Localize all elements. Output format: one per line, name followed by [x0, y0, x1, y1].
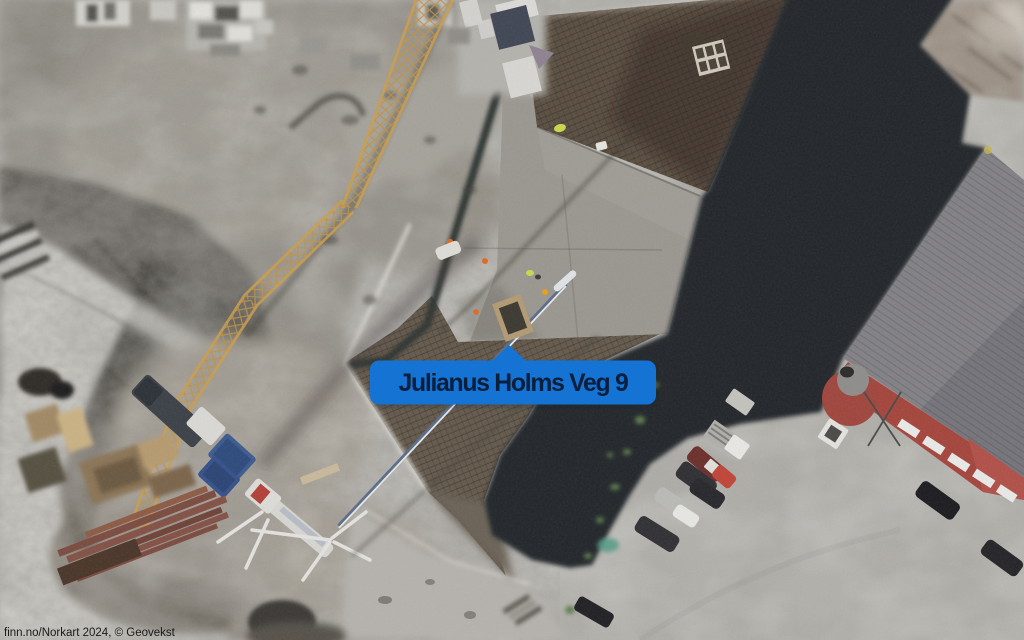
svg-text:Julianus Holms Veg 9: Julianus Holms Veg 9 [399, 370, 628, 397]
svg-text:finn.no/Norkart 2024, © Geovek: finn.no/Norkart 2024, © Geovekst [4, 627, 176, 639]
